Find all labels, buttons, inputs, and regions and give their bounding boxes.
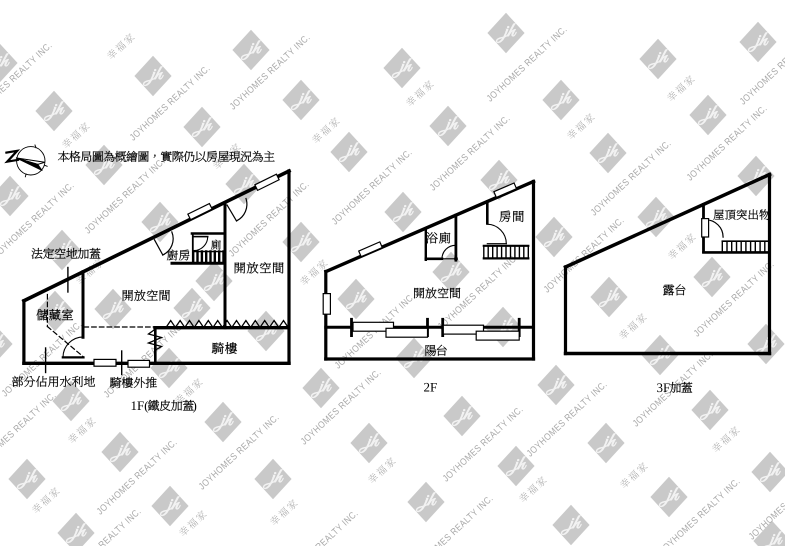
svg-text:JOYHOMES REALTY INC.: JOYHOMES REALTY INC.	[276, 508, 361, 546]
svg-text:JOYHOMES REALTY INC.: JOYHOMES REALTY INC.	[0, 390, 59, 470]
